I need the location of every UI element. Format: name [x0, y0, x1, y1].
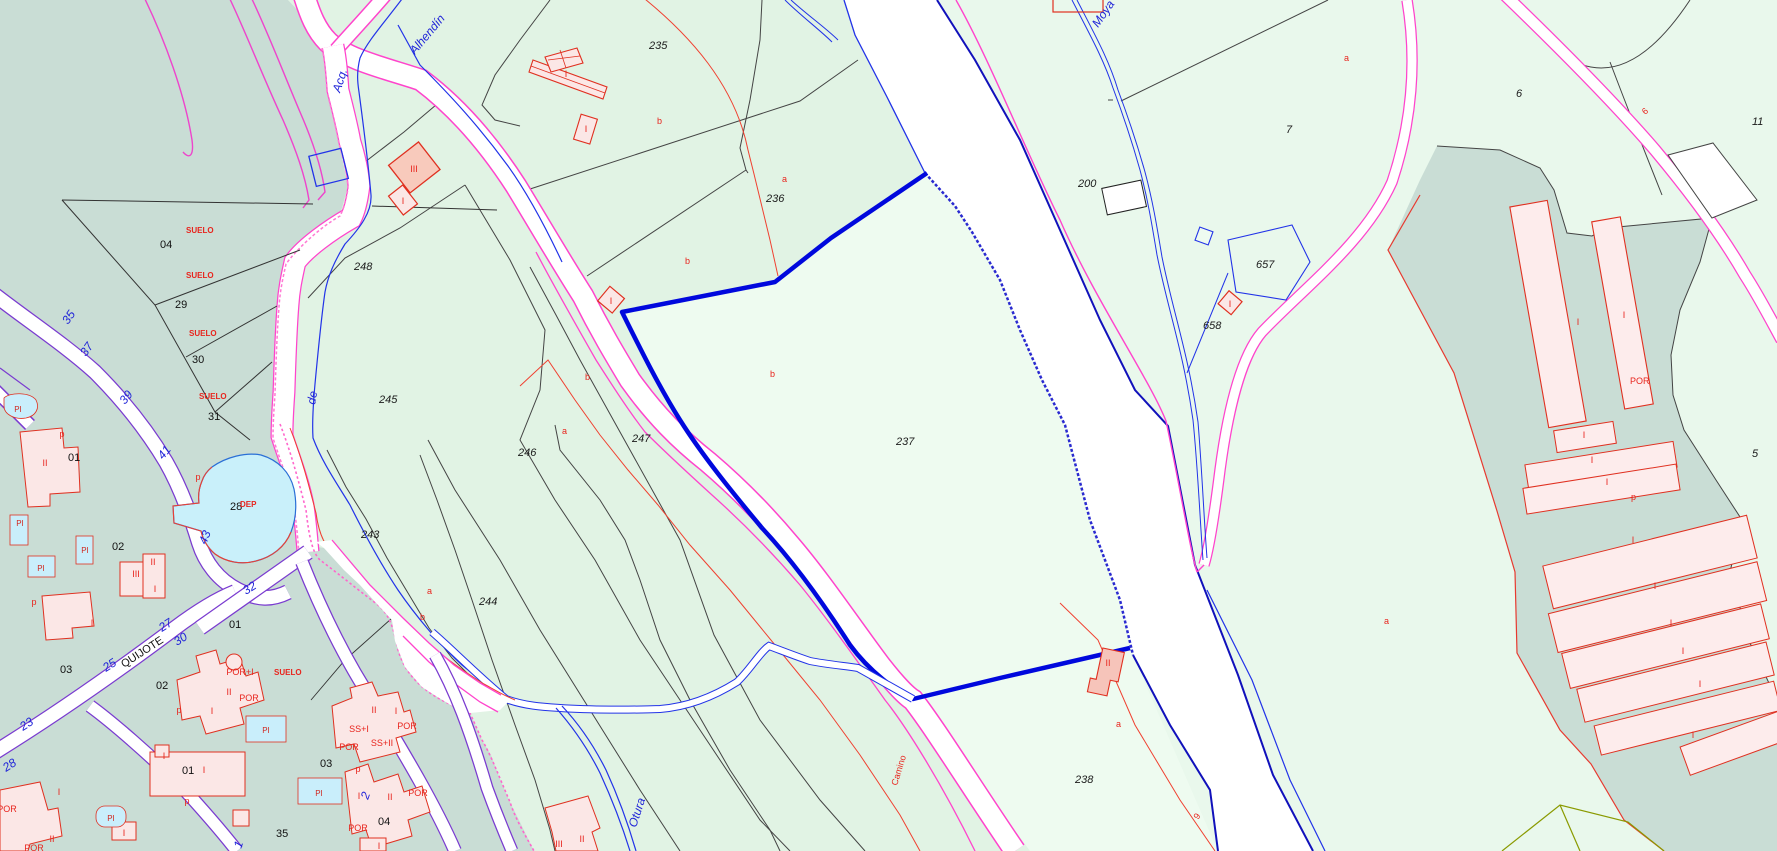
svg-text:SUELO: SUELO — [274, 668, 302, 677]
svg-text:SUELO: SUELO — [189, 329, 217, 338]
svg-text:I: I — [163, 751, 166, 761]
svg-text:p: p — [184, 796, 189, 806]
svg-text:247: 247 — [631, 433, 651, 445]
svg-text:30: 30 — [192, 354, 204, 366]
svg-text:200: 200 — [1077, 178, 1097, 190]
svg-text:POR+I: POR+I — [226, 667, 253, 677]
svg-text:I: I — [58, 787, 61, 797]
svg-text:I: I — [91, 618, 94, 628]
svg-text:POR: POR — [408, 788, 428, 798]
svg-text:248: 248 — [353, 261, 373, 273]
svg-text:I: I — [211, 706, 214, 716]
svg-text:SUELO: SUELO — [199, 392, 227, 401]
svg-text:I: I — [123, 828, 126, 838]
svg-text:SS+II: SS+II — [371, 738, 393, 748]
svg-text:I: I — [378, 841, 381, 851]
svg-text:b: b — [420, 612, 425, 622]
svg-text:236: 236 — [765, 193, 785, 205]
svg-text:SUELO: SUELO — [186, 271, 214, 280]
svg-text:III: III — [555, 839, 563, 849]
svg-text:de: de — [304, 390, 320, 406]
svg-text:POR: POR — [239, 693, 259, 703]
svg-text:I: I — [1654, 581, 1657, 591]
svg-text:a: a — [1116, 719, 1121, 729]
svg-text:I: I — [1682, 646, 1685, 656]
svg-text:237: 237 — [895, 436, 915, 448]
svg-text:I: I — [154, 584, 157, 594]
svg-text:02: 02 — [156, 680, 168, 692]
svg-text:POR: POR — [0, 804, 17, 814]
svg-text:b: b — [770, 369, 775, 379]
svg-text:II: II — [1105, 658, 1110, 668]
svg-text:b: b — [585, 372, 590, 382]
svg-text:I: I — [610, 296, 613, 306]
svg-text:II: II — [150, 557, 155, 567]
svg-text:PI: PI — [315, 789, 323, 798]
svg-text:POR: POR — [348, 823, 368, 833]
svg-text:01: 01 — [68, 452, 80, 464]
svg-text:03: 03 — [60, 664, 72, 676]
svg-text:I: I — [1623, 310, 1626, 320]
svg-text:p: p — [1631, 492, 1636, 502]
svg-text:02: 02 — [112, 541, 124, 553]
svg-text:II: II — [387, 792, 392, 802]
svg-text:SUELO: SUELO — [186, 226, 214, 235]
svg-text:SS+I: SS+I — [349, 724, 369, 734]
svg-text:I: I — [1583, 430, 1586, 440]
svg-text:a: a — [782, 174, 787, 184]
svg-text:11: 11 — [1752, 116, 1763, 128]
svg-text:POR: POR — [339, 742, 359, 752]
svg-text:657: 657 — [1256, 259, 1275, 271]
svg-text:I: I — [565, 69, 568, 79]
svg-text:I: I — [203, 765, 206, 775]
svg-text:01: 01 — [182, 765, 194, 777]
svg-text:PI: PI — [262, 726, 270, 735]
svg-text:PI: PI — [16, 519, 24, 528]
svg-text:243: 243 — [360, 529, 380, 541]
svg-text:DEP: DEP — [240, 500, 257, 509]
svg-text:I: I — [1577, 317, 1580, 327]
svg-text:244: 244 — [478, 596, 497, 608]
svg-text:II: II — [49, 834, 54, 844]
svg-text:PI: PI — [14, 405, 22, 414]
svg-text:246: 246 — [517, 447, 537, 459]
svg-text:p: p — [176, 705, 181, 715]
svg-text:31: 31 — [208, 411, 220, 423]
svg-text:POR: POR — [24, 843, 44, 851]
svg-text:p: p — [59, 429, 64, 439]
svg-text:03: 03 — [320, 758, 332, 770]
svg-text:I: I — [1699, 679, 1702, 689]
svg-text:I: I — [1591, 455, 1594, 465]
svg-text:235: 235 — [648, 40, 668, 52]
svg-text:04: 04 — [160, 239, 172, 251]
svg-text:238: 238 — [1074, 774, 1094, 786]
svg-text:5: 5 — [1752, 448, 1759, 460]
svg-text:I: I — [1670, 618, 1673, 628]
svg-text:6: 6 — [1516, 88, 1523, 100]
svg-text:I: I — [1229, 299, 1232, 309]
svg-text:245: 245 — [378, 394, 398, 406]
svg-text:04: 04 — [378, 816, 390, 828]
svg-text:PI: PI — [37, 564, 45, 573]
svg-text:p: p — [355, 764, 360, 774]
svg-text:III: III — [132, 569, 140, 579]
svg-text:II: II — [579, 834, 584, 844]
svg-text:a: a — [427, 586, 432, 596]
svg-text:35: 35 — [276, 828, 288, 840]
svg-text:I: I — [395, 706, 398, 716]
svg-text:I: I — [1692, 730, 1695, 740]
svg-text:I: I — [1632, 535, 1635, 545]
svg-text:29: 29 — [175, 299, 187, 311]
svg-text:I: I — [1606, 477, 1609, 487]
svg-text:POR: POR — [1630, 376, 1650, 386]
svg-text:PI: PI — [81, 546, 89, 555]
svg-text:p: p — [31, 597, 36, 607]
svg-text:POR: POR — [397, 721, 417, 731]
svg-text:I: I — [585, 124, 588, 134]
svg-text:01: 01 — [229, 619, 241, 631]
svg-text:p: p — [195, 472, 200, 482]
svg-text:PI: PI — [107, 814, 115, 823]
svg-text:III: III — [410, 164, 418, 174]
svg-text:II: II — [42, 458, 47, 468]
svg-text:b: b — [685, 256, 690, 266]
svg-text:a: a — [1344, 53, 1349, 63]
svg-text:b: b — [657, 116, 662, 126]
svg-text:a: a — [1384, 616, 1389, 626]
svg-text:II: II — [371, 705, 376, 715]
svg-text:II: II — [226, 687, 231, 697]
svg-text:7: 7 — [1286, 124, 1293, 136]
svg-text:658: 658 — [1203, 320, 1222, 332]
svg-text:I: I — [402, 196, 405, 206]
svg-text:a: a — [562, 426, 567, 436]
